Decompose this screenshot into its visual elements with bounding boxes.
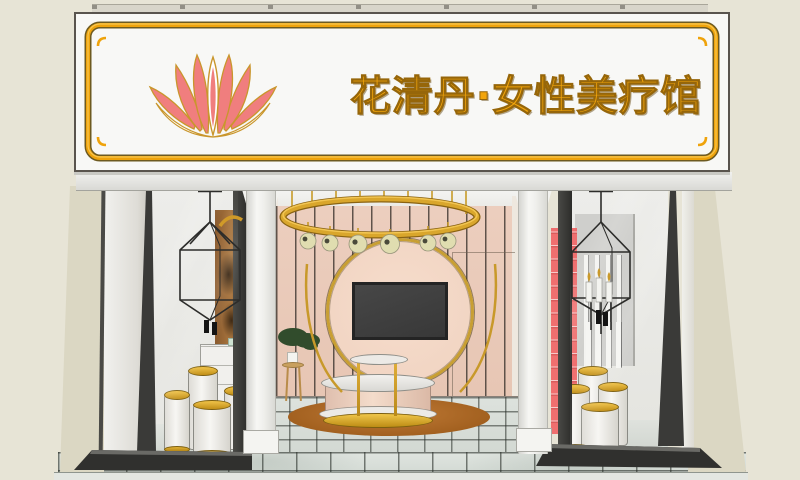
display-counter-top <box>321 374 435 392</box>
right-side-wall <box>688 186 746 472</box>
sign-text: 花清丹·女性美疗馆 <box>338 14 714 170</box>
counter-upper-shelf <box>350 354 408 365</box>
right-window-frame-bar <box>558 188 572 448</box>
cylinder-gold-cap <box>578 366 608 376</box>
display-counter-gold-base <box>323 413 433 428</box>
pedestal-cylinder <box>164 394 190 452</box>
shelf-leg <box>394 358 397 416</box>
sign-board: 花清丹·女性美疗馆 <box>74 12 730 172</box>
left-pillar-plinth <box>243 430 279 454</box>
cylinder-gold-cap <box>581 402 619 412</box>
right-pillar-plinth <box>516 428 552 452</box>
lotus-logo-icon <box>138 48 288 140</box>
cylinder-gold-cap <box>598 382 628 392</box>
right-window-jamb <box>682 190 694 448</box>
left-window-jamb <box>104 188 146 454</box>
left-pillar <box>246 188 276 454</box>
right-pillar <box>518 188 548 454</box>
cylinder-gold-cap <box>188 366 218 376</box>
shelf-leg <box>357 358 360 416</box>
walkway-tiles <box>58 452 746 473</box>
white-rack <box>586 322 624 368</box>
cylinder-gold-cap <box>164 390 190 400</box>
stool <box>282 362 304 368</box>
storefront-render: 花清丹·女性美疗馆 <box>0 0 800 480</box>
platform-edge <box>54 472 748 480</box>
tv-screen <box>352 282 448 340</box>
pedestal-cylinder <box>193 404 231 456</box>
canopy-fascia <box>76 172 732 191</box>
plant-foliage <box>303 341 318 350</box>
cylinder-gold-cap <box>193 400 231 410</box>
